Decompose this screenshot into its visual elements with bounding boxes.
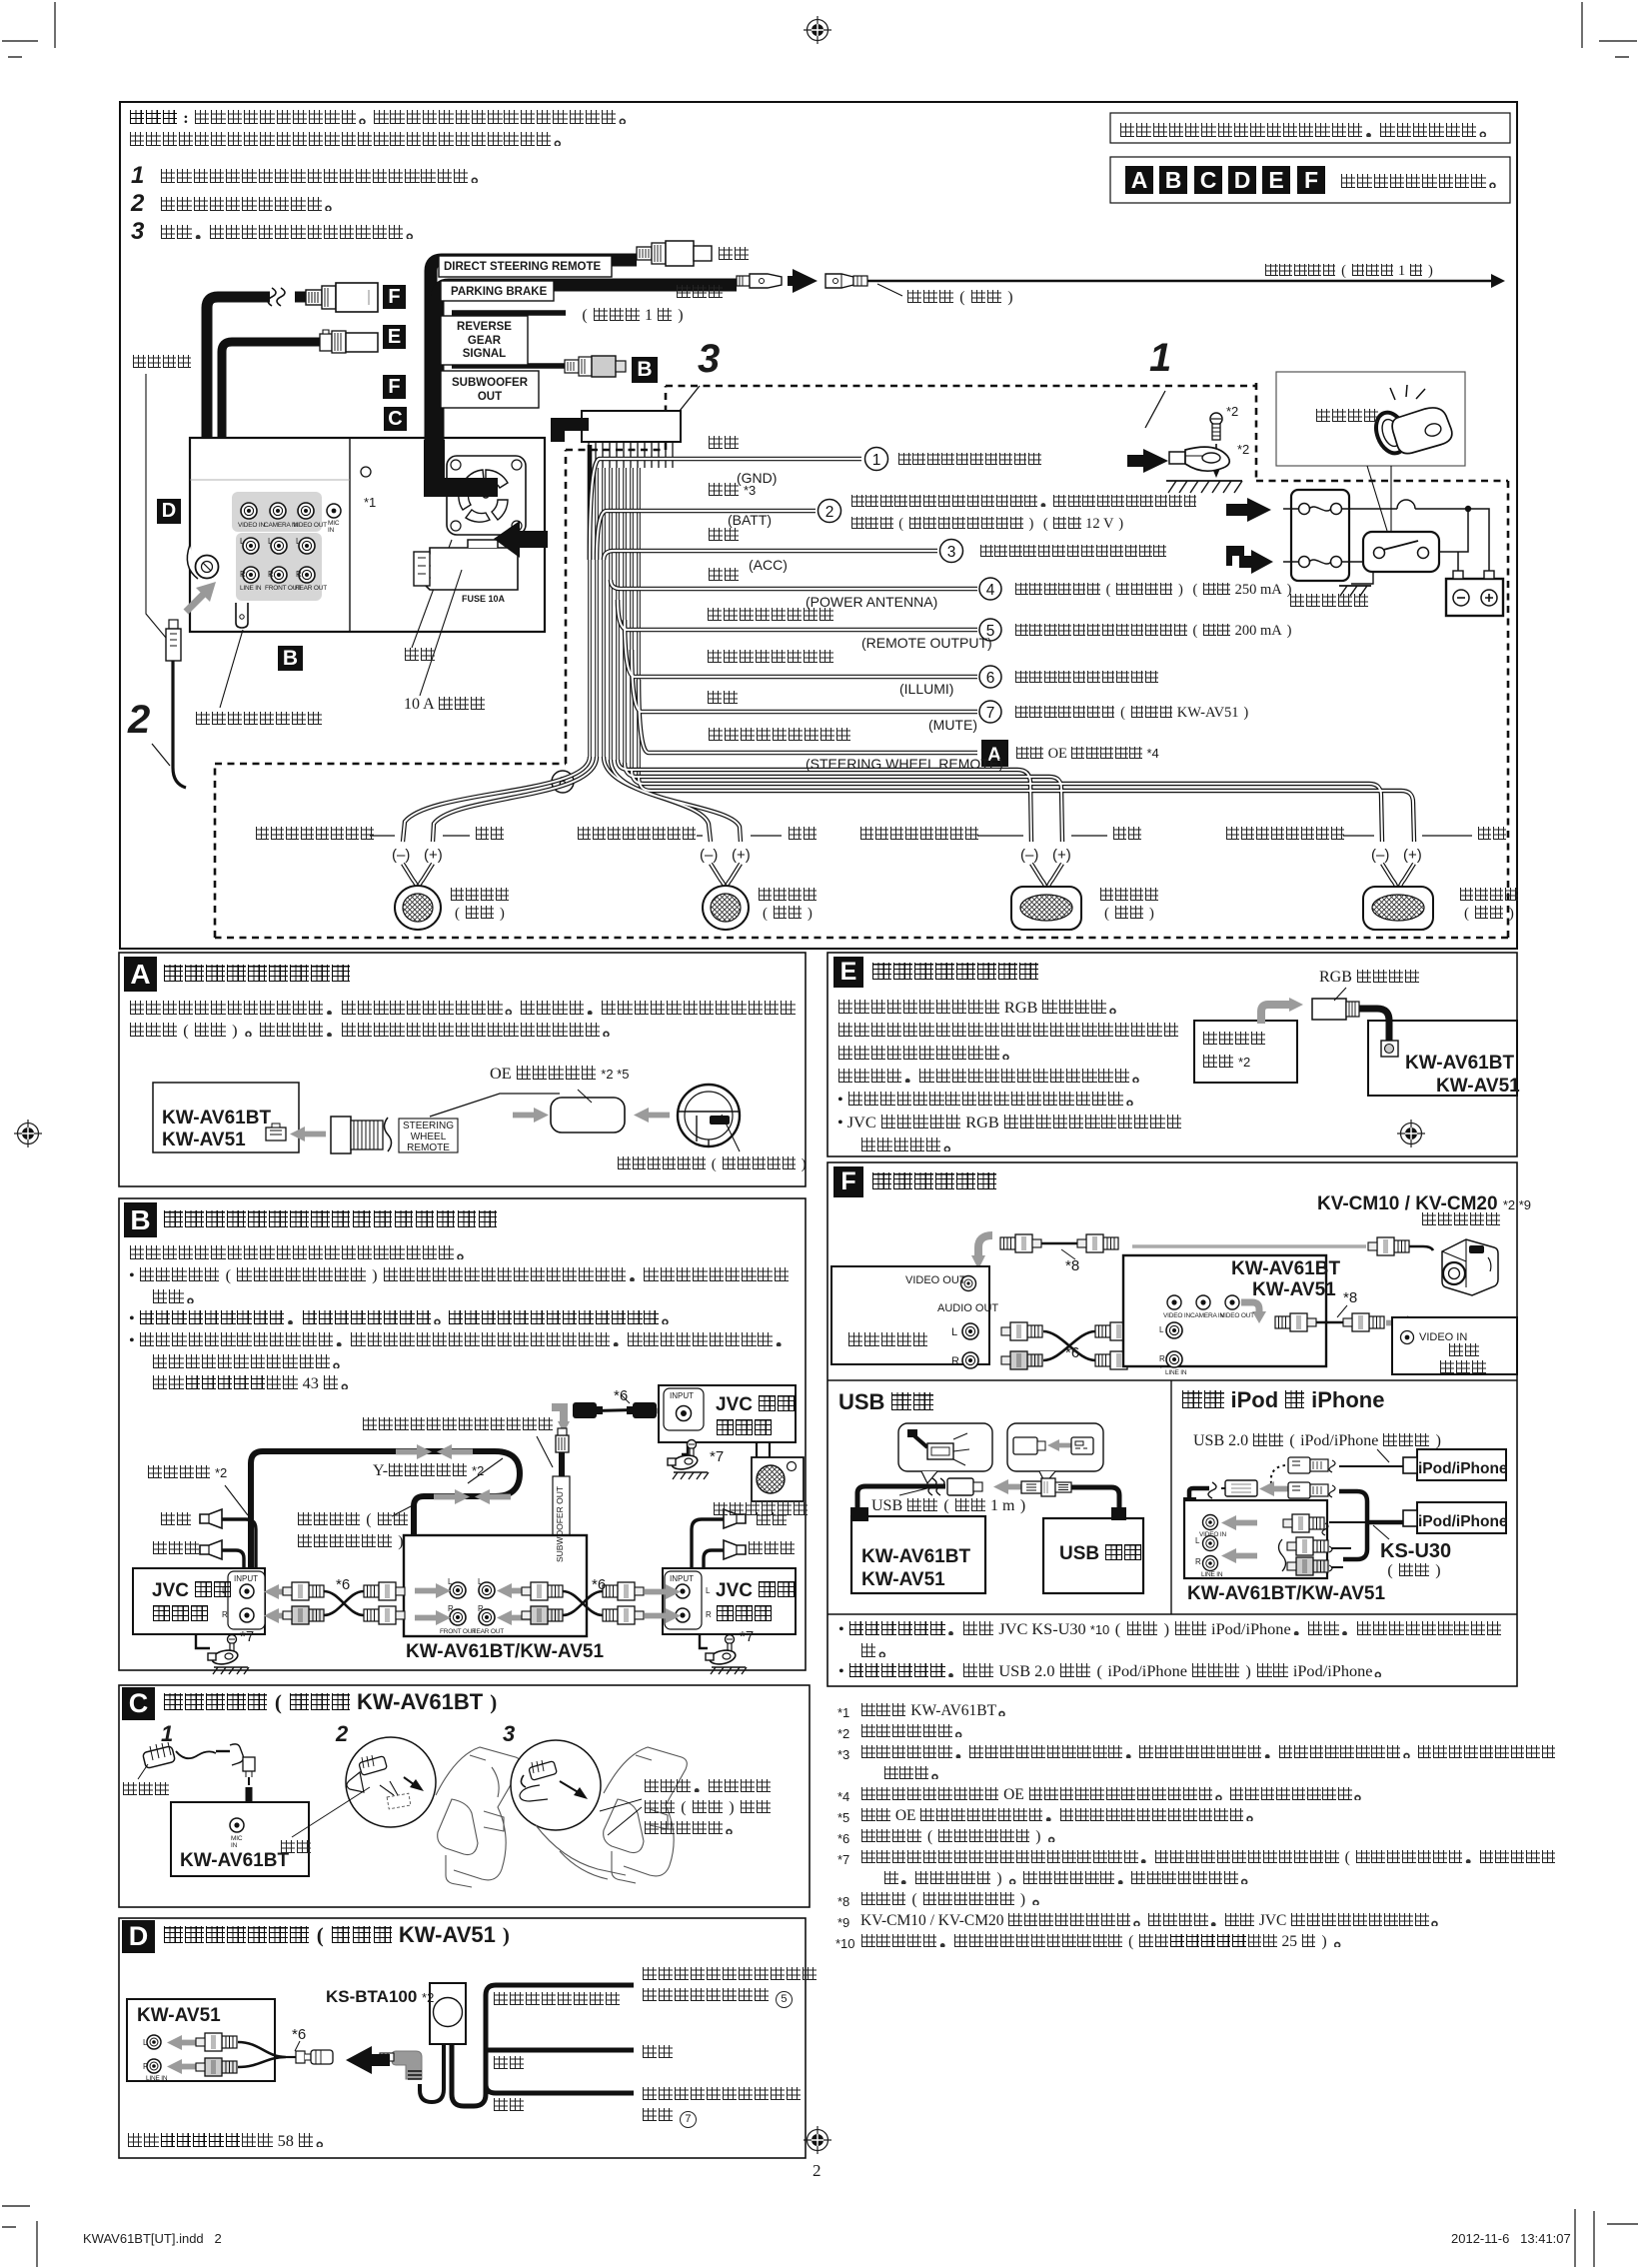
- svg-text:3: 3: [947, 544, 956, 561]
- svg-text:4: 4: [986, 582, 995, 599]
- svg-text:2: 2: [825, 504, 834, 521]
- svg-text:6: 6: [986, 670, 995, 687]
- svg-text:7: 7: [986, 705, 995, 722]
- svg-text:1: 1: [872, 452, 881, 469]
